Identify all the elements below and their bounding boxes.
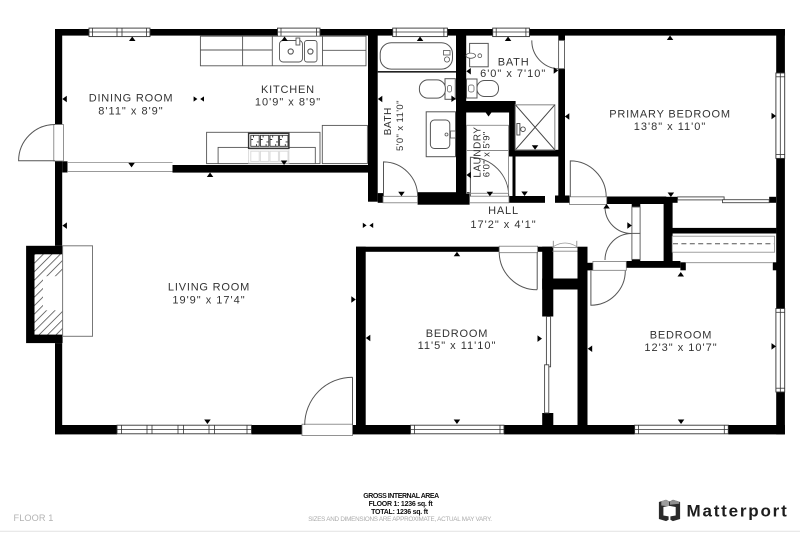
svg-text:KITCHEN: KITCHEN [261,84,315,96]
svg-text:BEDROOM: BEDROOM [650,329,712,341]
svg-text:PRIMARY BEDROOM: PRIMARY BEDROOM [609,108,731,120]
svg-text:DINING ROOM: DINING ROOM [89,92,174,104]
svg-text:FLOOR 1: FLOOR 1 [14,513,54,523]
svg-text:8'11" x 8'9": 8'11" x 8'9" [98,106,163,118]
svg-text:LIVING ROOM: LIVING ROOM [168,281,250,293]
svg-text:6'0" x 7'10": 6'0" x 7'10" [480,68,546,80]
svg-text:BATH: BATH [383,107,394,135]
svg-text:GROSS INTERNAL AREA: GROSS INTERNAL AREA [363,493,439,500]
svg-text:BATH: BATH [498,57,530,69]
svg-text:11'5" x 11'10": 11'5" x 11'10" [418,340,497,352]
svg-text:6'0" x 5'9": 6'0" x 5'9" [482,131,493,177]
svg-text:10'9" x 8'9": 10'9" x 8'9" [255,96,321,108]
svg-text:HALL: HALL [488,205,519,217]
svg-text:12'3" x 10'7": 12'3" x 10'7" [644,342,717,354]
svg-text:Matterport: Matterport [687,501,789,520]
svg-text:FLOOR 1: 1236 sq. ft: FLOOR 1: 1236 sq. ft [369,501,434,508]
svg-text:19'9" x 17'4": 19'9" x 17'4" [172,294,245,306]
svg-text:SIZES AND DIMENSIONS ARE APPRO: SIZES AND DIMENSIONS ARE APPROXIMATE, AC… [308,516,492,523]
svg-text:5'0" x 11'0": 5'0" x 11'0" [395,100,406,151]
svg-text:BEDROOM: BEDROOM [426,328,488,340]
svg-text:13'8" x 11'0": 13'8" x 11'0" [634,121,707,133]
svg-text:17'2" x 4'1": 17'2" x 4'1" [470,219,536,231]
